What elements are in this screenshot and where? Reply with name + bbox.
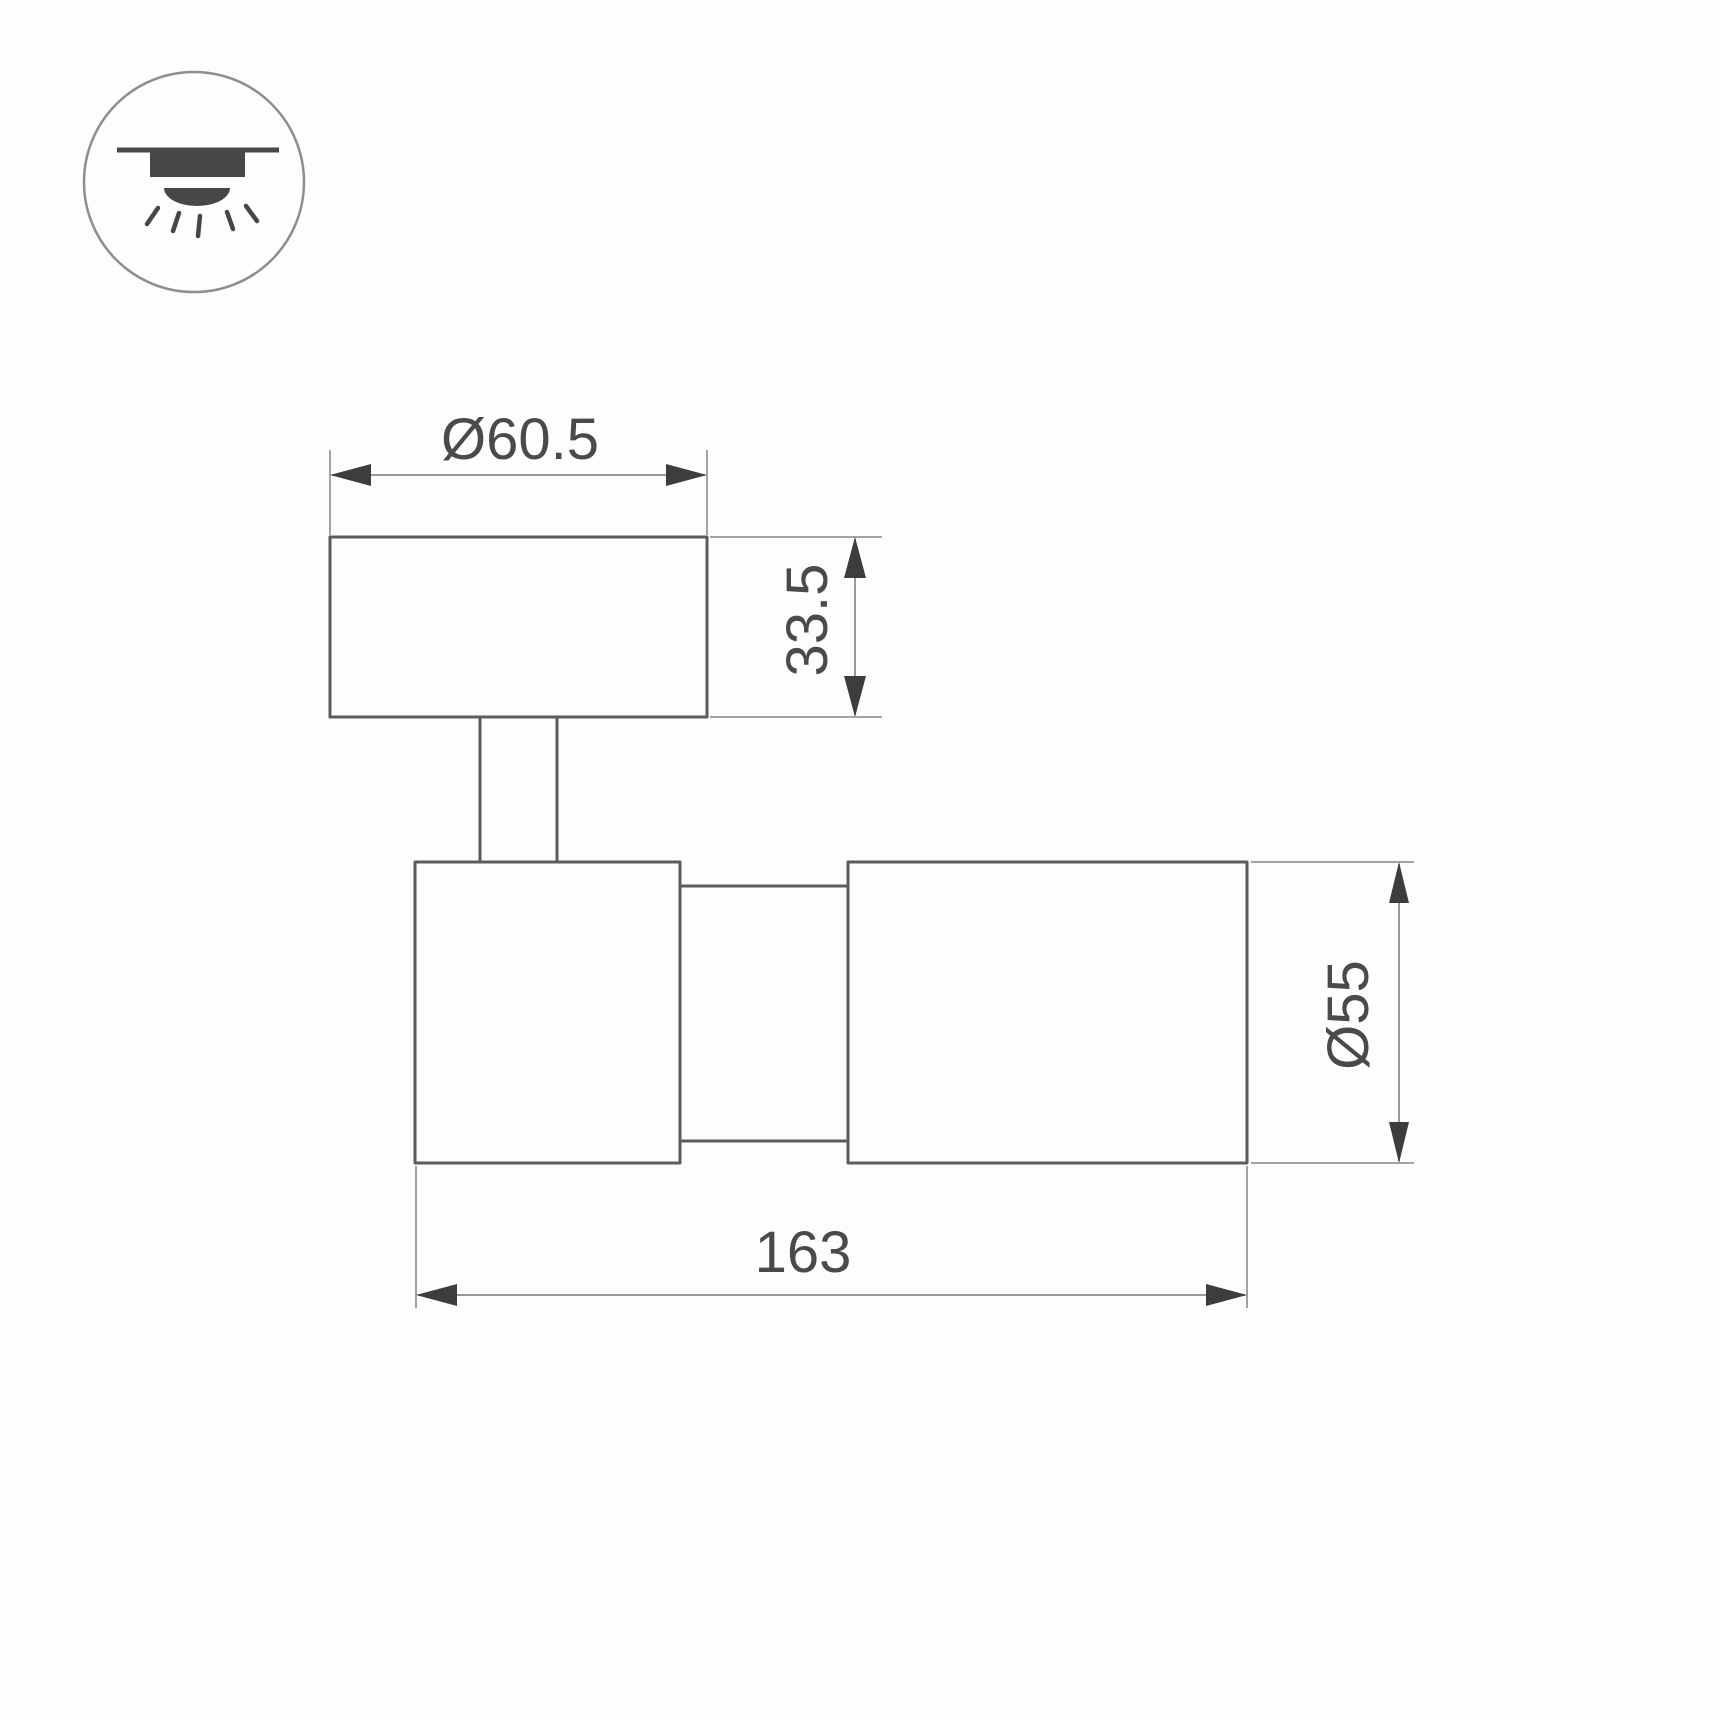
dim-label-body-diameter: Ø55 [1316,960,1381,1070]
arrow-right-icon [1206,1284,1247,1306]
surface-mounted-ceiling-light-icon [84,72,304,292]
arrow-left-icon [330,464,371,486]
arrow-left-icon [416,1284,457,1306]
dim-label-overall-length: 163 [755,1220,852,1285]
dimension-overall-length: 163 [416,1166,1247,1308]
stem-outline [480,717,557,862]
canopy-outline [330,537,707,717]
dim-label-canopy-height: 33.5 [775,564,840,677]
dimension-canopy-diameter: Ø60.5 [330,407,707,535]
connector-outline [680,886,848,1141]
arrow-right-icon [666,464,707,486]
body-right-outline [848,862,1247,1163]
arrow-down-icon [1389,1122,1409,1163]
body-left-outline [415,862,680,1163]
dim-label-canopy-diameter: Ø60.5 [441,407,599,472]
icon-circle-border [84,72,304,292]
technical-drawing-canvas: Ø60.5 33.5 Ø55 163 [0,0,1720,1720]
arrow-up-icon [844,537,866,578]
arrow-down-icon [844,676,866,717]
dimension-body-diameter: Ø55 [1251,862,1414,1163]
dimension-canopy-height: 33.5 [710,537,882,717]
spotlight-dimension-drawing: Ø60.5 33.5 Ø55 163 [0,0,1720,1720]
icon-fixture-body [150,151,245,177]
arrow-up-icon [1389,862,1409,903]
